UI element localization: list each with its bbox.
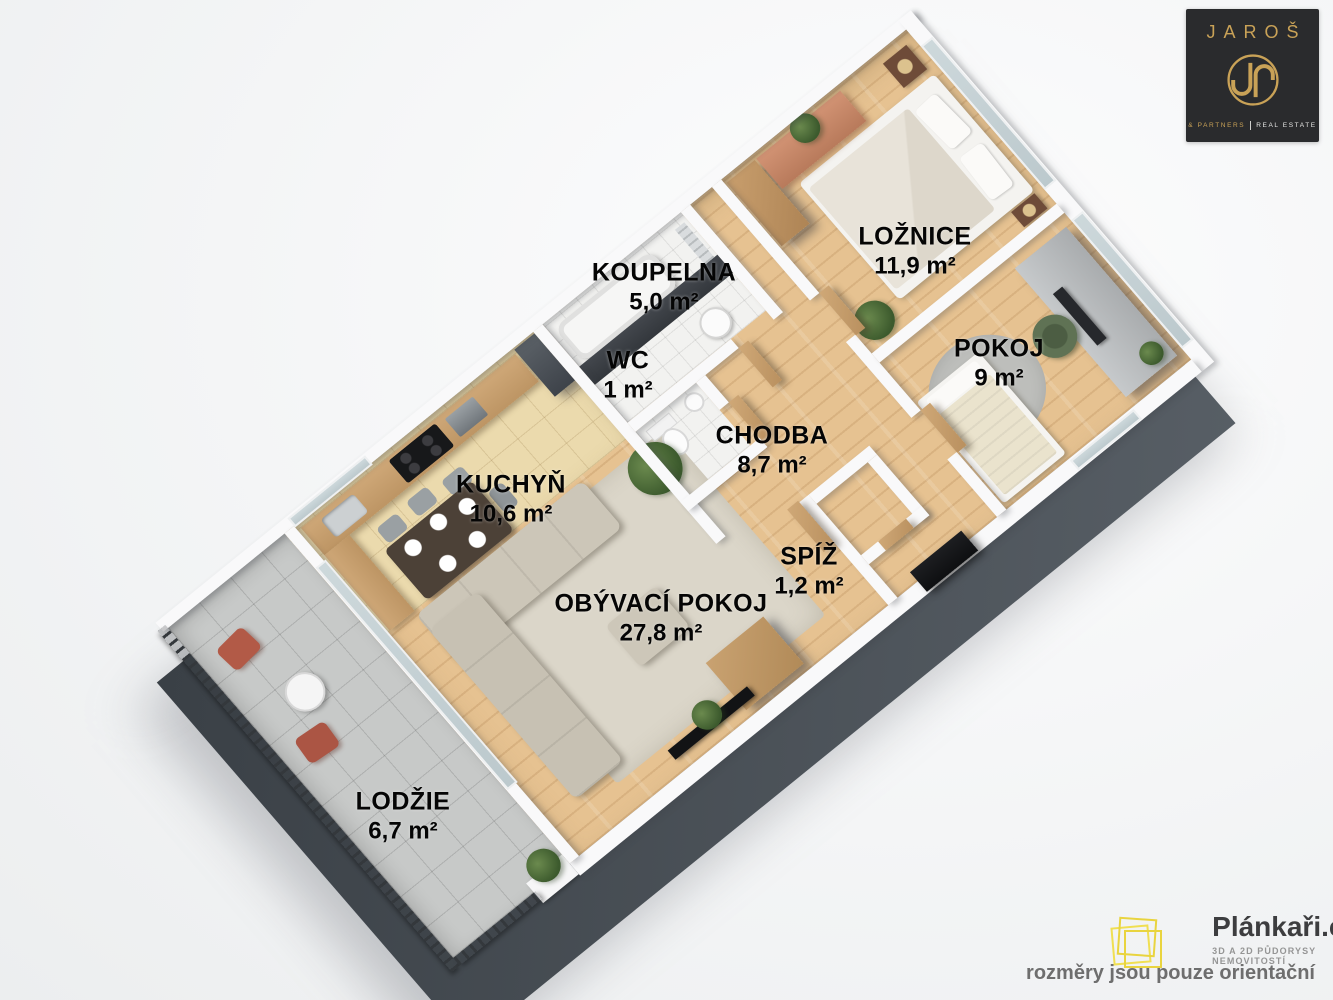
jaros-tagline-left: & PARTNERS (1188, 122, 1245, 129)
room-name: SPÍŽ (774, 542, 843, 572)
room-label-loznice: LOŽNICE 11,9 m² (858, 222, 971, 281)
room-area: 1,2 m² (774, 572, 843, 601)
room-name: OBÝVACÍ POKOJ (554, 589, 767, 619)
room-area: 9 m² (954, 364, 1044, 393)
room-area: 10,6 m² (456, 500, 566, 529)
room-area: 8,7 m² (716, 451, 829, 480)
room-label-pokoj: POKOJ 9 m² (954, 334, 1044, 393)
room-name: CHODBA (716, 421, 829, 451)
jaros-logo-title: JAROŠ (1198, 22, 1306, 43)
room-area: 6,7 m² (356, 817, 451, 846)
floor-plan-scene: KOUPELNA 5,0 m² WC 1 m² LOŽNICE 11,9 m² … (0, 0, 1333, 1000)
room-name: LOŽNICE (858, 222, 971, 252)
room-area: 27,8 m² (554, 619, 767, 648)
room-label-lodzie: LODŽIE 6,7 m² (356, 787, 451, 846)
room-area: 11,9 m² (858, 252, 971, 281)
plankari-text-block: Plánkaři.cz 3D A 2D PŮDORYSY NEMOVITOSTÍ (1212, 912, 1333, 966)
jaros-logo-tagline: & PARTNERS REAL ESTATE (1188, 121, 1316, 130)
room-label-kuchyn: KUCHYŇ 10,6 m² (456, 470, 566, 529)
jaros-tagline-right: REAL ESTATE (1256, 122, 1316, 129)
jaros-monogram-icon (1220, 47, 1286, 113)
room-name: KUCHYŇ (456, 470, 566, 500)
room-label-spiz: SPÍŽ 1,2 m² (774, 542, 843, 601)
room-area: 1 m² (603, 376, 652, 405)
jaros-tagline-divider (1250, 121, 1251, 130)
room-label-wc: WC 1 m² (603, 346, 652, 405)
room-name: WC (603, 346, 652, 376)
room-name: POKOJ (954, 334, 1044, 364)
room-name: LODŽIE (356, 787, 451, 817)
jaros-logo: JAROŠ & PARTNERS REAL ESTATE (1186, 9, 1319, 142)
room-label-chodba: CHODBA 8,7 m² (716, 421, 829, 480)
room-area: 5,0 m² (592, 288, 736, 317)
room-label-obyvaci-pokoj: OBÝVACÍ POKOJ 27,8 m² (554, 589, 767, 648)
room-name: KOUPELNA (592, 258, 736, 288)
room-label-koupelna: KOUPELNA 5,0 m² (592, 258, 736, 317)
plankari-title: Plánkaři.cz (1212, 912, 1333, 942)
dimensions-disclaimer: rozměry jsou pouze orientační (1026, 962, 1315, 985)
